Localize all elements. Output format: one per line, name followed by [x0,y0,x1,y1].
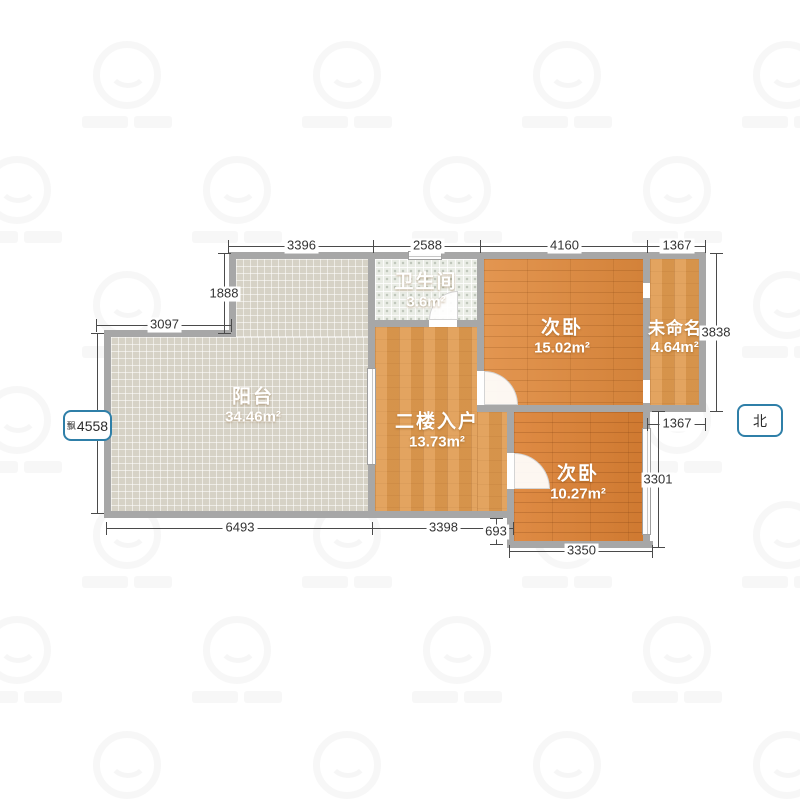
dimension-top-3396: 3396 [229,246,374,247]
dim-label: 693 [483,525,509,540]
opening-unnamed-divider-upper [643,283,650,298]
door-gap-bathroom [429,320,457,327]
dim-label: 3398 [426,521,461,536]
selected-dimension-input[interactable]: 飘 4558 [63,410,112,441]
dim-label: 3396 [284,239,319,254]
watermark-logo [402,616,512,703]
room-area: 4.64m² [648,338,702,357]
dim-tick [106,522,107,535]
door-gap-bedroom-lower [507,453,514,489]
watermark-logo [182,616,292,703]
opening-unnamed-divider-lower [643,380,650,403]
window-balcony-entry [367,368,376,465]
room-name: 阳台 [225,387,281,409]
wall-bathroom-bottom [368,320,484,327]
dimension-left-3097: 3097 [97,325,232,326]
dim-tick [509,545,510,558]
room-area: 10.27m² [550,486,606,505]
dimension-top-1367: 1367 [648,246,706,247]
dim-tick [647,418,648,431]
dim-tick [652,547,665,548]
dim-tick [513,522,514,535]
dim-tick [710,411,723,412]
dim-prefix: 飘 [67,419,76,432]
dim-tick [91,513,104,514]
dimension-left-1888: 1888 [224,254,225,334]
dim-tick [705,240,706,253]
dim-label: 4160 [547,239,582,254]
dim-tick [218,253,231,254]
dimension-top-4160: 4160 [481,246,648,247]
room-area: 13.73m² [395,434,479,453]
room-label-balcony: 阳台 34.46m² [225,387,281,428]
watermark-logo [732,271,800,358]
watermark-logo [72,41,182,128]
dim-label: 2588 [410,239,445,254]
dim-label: 3301 [642,473,675,488]
north-indicator: 北 [737,404,783,437]
dim-label: 1888 [208,287,241,302]
room-area: 3.6m² [394,294,457,313]
dim-tick [228,240,229,253]
dimension-right-3838: 3838 [716,254,717,412]
dim-tick [705,418,706,431]
dimension-right-1367: 1367 [648,424,706,425]
north-label: 北 [753,411,767,431]
room-label-bathroom: 卫生间 3.6m² [394,272,457,313]
room-label-entry: 二楼入户 13.73m² [395,412,479,453]
room-name: 卫生间 [394,272,457,294]
watermark-logo [512,41,622,128]
dim-tick [96,319,97,332]
dimension-bottom-6493: 6493 [107,528,373,529]
dim-tick [91,333,104,334]
dim-tick [480,240,481,253]
dim-tick [652,411,665,412]
dim-tick [647,240,648,253]
watermark-logo [512,731,622,800]
room-name: 次卧 [550,464,606,486]
dim-tick [490,518,503,519]
dim-tick [710,253,723,254]
watermark-logo [0,616,72,703]
watermark-logo [732,41,800,128]
wall-bottom [104,511,514,518]
dimension-top-2588: 2588 [374,246,481,247]
room-label-unnamed: 未命名 4.64m² [648,319,702,357]
door-gap-bedroom-upper [477,371,484,405]
dim-tick [373,240,374,253]
dim-label: 3097 [147,318,182,333]
watermark-logo [732,501,800,588]
watermark-logo [182,156,292,243]
dim-label: 3838 [700,326,733,341]
room-name: 次卧 [534,318,590,340]
dimension-bottom-693: 693 [496,519,497,545]
dim-label: 1367 [660,239,695,254]
room-label-bedroom-upper: 次卧 15.02m² [534,318,590,359]
watermark-logo [292,731,402,800]
dim-label: 6493 [223,521,258,536]
watermark-logo [622,616,732,703]
watermark-logo [72,731,182,800]
watermark-logo [732,731,800,800]
dimension-right-3301: 3301 [658,412,659,548]
room-area: 34.46m² [225,409,281,428]
room-name: 二楼入户 [395,412,479,434]
room-area: 15.02m² [534,340,590,359]
dim-tick [372,522,373,535]
wall-mid-horizontal [477,405,650,412]
watermark-logo [0,156,72,243]
dim-tick [218,333,231,334]
floorplan-canvas: 阳台 34.46m² 卫生间 3.6m² 次卧 15.02m² 未命名 4.64… [0,0,800,800]
dim-label: 1367 [660,417,695,432]
dim-value: 4558 [77,418,108,434]
watermark-logo [0,386,72,473]
watermark-logo [402,156,512,243]
watermark-logo [622,156,732,243]
watermark-logo [292,41,402,128]
room-name: 未命名 [648,319,702,339]
dim-tick [490,544,503,545]
room-entry-floor-ext[interactable] [477,412,507,511]
dim-label: 3350 [564,544,599,559]
dimension-bottom-3350: 3350 [510,551,653,552]
room-label-bedroom-lower: 次卧 10.27m² [550,464,606,505]
dim-tick [231,319,232,332]
